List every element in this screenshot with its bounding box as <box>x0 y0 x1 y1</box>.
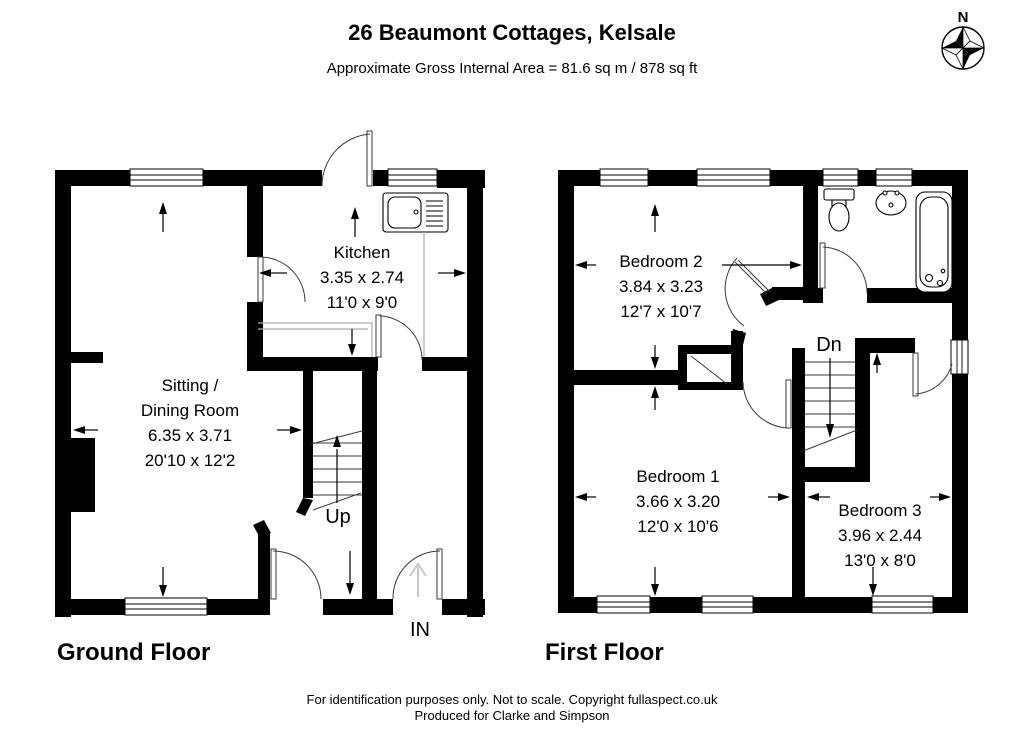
sitting-size-metric: 6.35 x 3.71 <box>148 426 232 445</box>
chimney-breast <box>71 438 95 512</box>
first-floor-title: First Floor <box>545 639 664 666</box>
bedroom3-window <box>872 596 933 613</box>
bedroom2-door <box>725 258 770 326</box>
first-window-bottom-2 <box>702 596 753 613</box>
sitting-label-line1: Sitting / <box>162 376 219 395</box>
bedroom1-size-imperial: 12'0 x 10'6 <box>637 517 718 536</box>
entrance-in-arrow <box>410 564 426 597</box>
compass-icon: N <box>942 9 984 69</box>
bedroom1-door <box>743 380 791 428</box>
kitchen-back-door <box>322 131 372 186</box>
ground-window-kitchen <box>388 169 437 186</box>
stairs-down-label: Dn <box>816 334 842 356</box>
kitchen-sink <box>383 193 448 232</box>
toilet <box>824 189 854 231</box>
kitchen-label: Kitchen <box>334 243 391 262</box>
bedroom2-size-imperial: 12'7 x 10'7 <box>620 302 701 321</box>
ground-floor-plan: Kitchen 3.35 x 2.74 11'0 x 9'0 Sitting /… <box>55 131 485 666</box>
ground-room-labels: Kitchen 3.35 x 2.74 11'0 x 9'0 Sitting /… <box>141 243 430 641</box>
ground-interior-walls <box>71 186 467 599</box>
landing-cupboard <box>678 329 746 390</box>
bathroom-door <box>820 243 867 293</box>
stairs-down-arrow <box>826 358 834 438</box>
stairs-up <box>311 431 362 510</box>
bedroom3-label: Bedroom 3 <box>838 501 921 520</box>
bedroom3-size-imperial: 13'0 x 8'0 <box>844 551 916 570</box>
stairs-up-label: Up <box>325 506 351 528</box>
ground-window-bottom <box>125 598 207 615</box>
bedroom3-size-metric: 3.96 x 2.44 <box>838 526 922 545</box>
front-room-door <box>271 549 321 599</box>
bedroom1-size-metric: 3.66 x 3.20 <box>636 492 720 511</box>
kitchen-hall-door <box>376 315 422 360</box>
first-window-top-2 <box>697 169 770 186</box>
ground-floor-title: Ground Floor <box>57 639 210 666</box>
compass-north-label: N <box>958 9 969 26</box>
sitting-size-imperial: 20'10 x 12'2 <box>145 451 236 470</box>
bathtub <box>916 192 952 292</box>
floorplan-page: 26 Beaumont Cottages, Kelsale Approximat… <box>0 0 1024 739</box>
kitchen-size-metric: 3.35 x 2.74 <box>320 268 404 287</box>
kitchen-size-imperial: 11'0 x 9'0 <box>327 293 397 312</box>
ground-window-top-left <box>130 169 203 186</box>
page-title: 26 Beaumont Cottages, Kelsale <box>348 20 676 45</box>
first-outer-walls <box>558 170 968 613</box>
page-subtitle: Approximate Gross Internal Area = 81.6 s… <box>327 60 698 77</box>
first-window-right <box>951 340 968 374</box>
footer-line1: For identification purposes only. Not to… <box>307 692 718 707</box>
bedroom2-label: Bedroom 2 <box>619 252 702 271</box>
entrance-in-label: IN <box>410 619 430 641</box>
bathroom-window-2 <box>876 169 912 186</box>
footer-line2: Produced for Clarke and Simpson <box>414 708 609 723</box>
kitchen-sitting-door <box>258 257 305 302</box>
first-floor-plan: Bedroom 2 3.84 x 3.23 12'7 x 10'7 Bedroo… <box>545 169 968 666</box>
first-window-bottom-1 <box>597 596 650 613</box>
bedroom3-door <box>913 353 952 396</box>
basin <box>876 191 906 215</box>
bedroom1-label: Bedroom 1 <box>636 467 719 486</box>
bedroom2-size-metric: 3.84 x 3.23 <box>619 277 703 296</box>
floorplan-drawing: 26 Beaumont Cottages, Kelsale Approximat… <box>0 0 1024 739</box>
sitting-label-line2: Dining Room <box>141 401 239 420</box>
stairs-down <box>803 358 857 451</box>
bathroom-window-1 <box>823 169 858 186</box>
first-window-top-1 <box>600 169 648 186</box>
